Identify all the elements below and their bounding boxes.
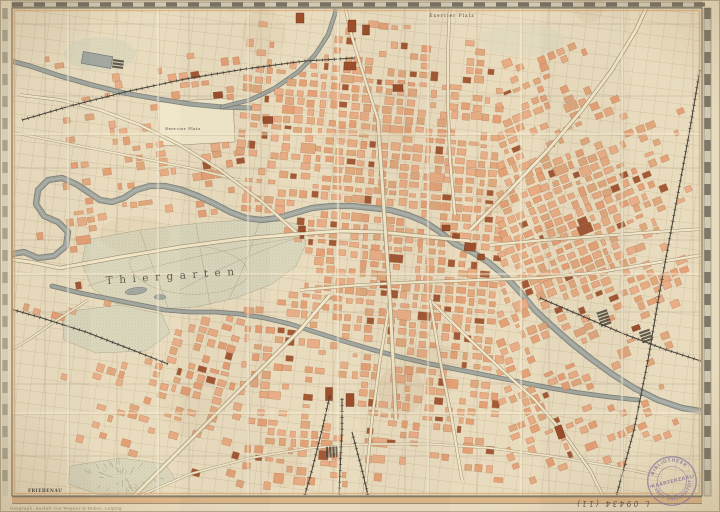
aging-texture — [0, 0, 720, 512]
map-sheet: Thiergarten Exercier Platz Exercier Plat… — [0, 0, 720, 512]
map-canvas: Thiergarten Exercier Platz Exercier Plat… — [0, 0, 720, 512]
